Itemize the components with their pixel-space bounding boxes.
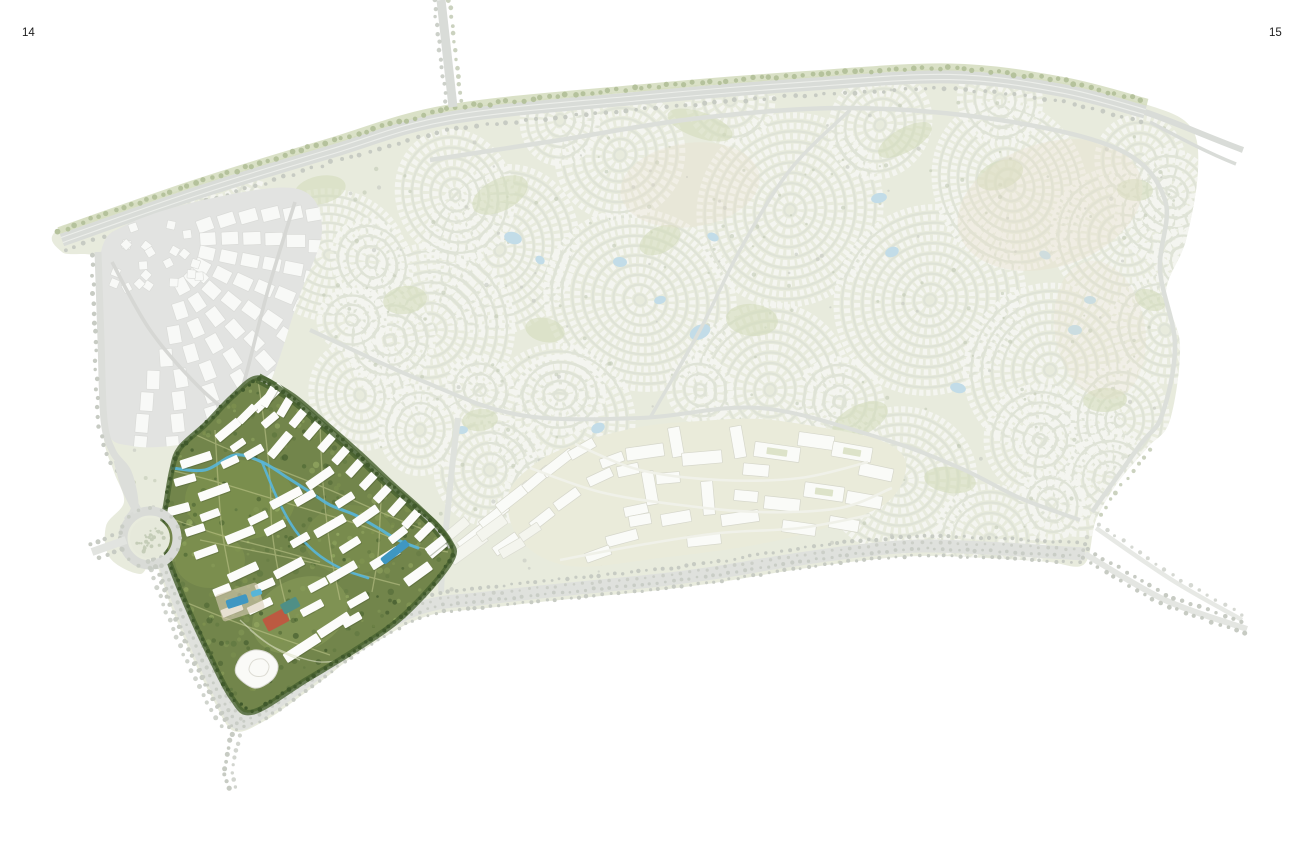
- svg-text:14: 14: [22, 27, 35, 39]
- svg-text:15: 15: [1269, 27, 1282, 39]
